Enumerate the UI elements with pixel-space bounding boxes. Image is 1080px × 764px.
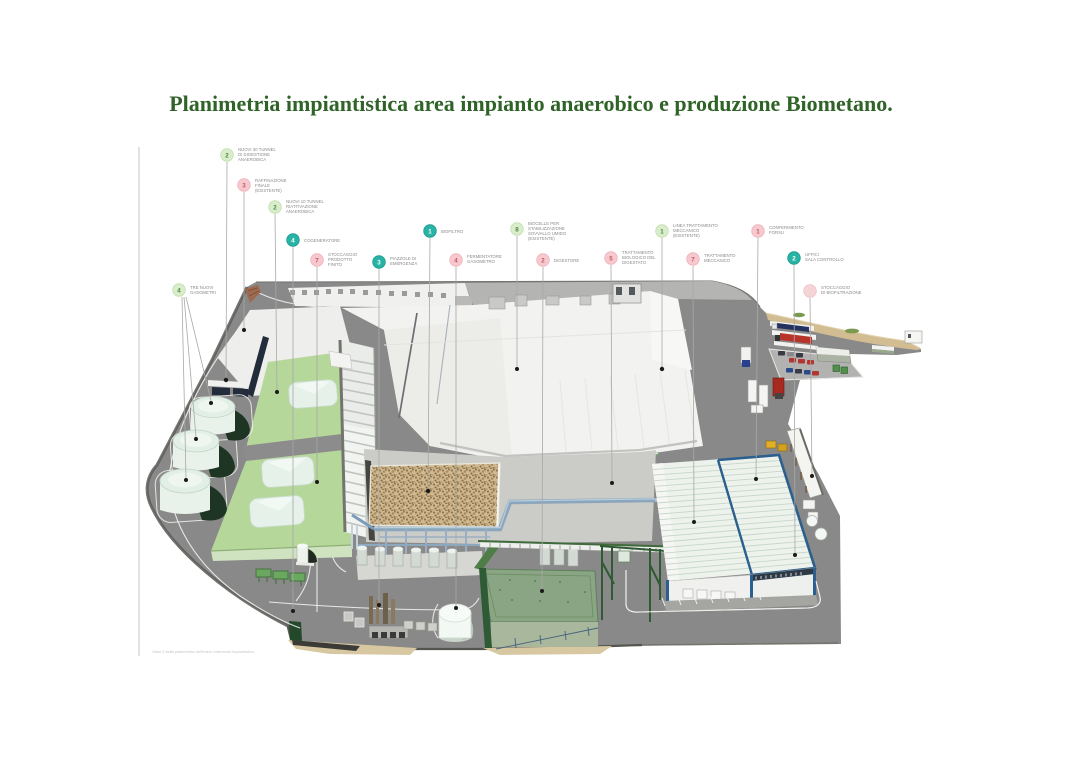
svg-text:8: 8: [515, 227, 519, 234]
svg-text:EMERGENZA: EMERGENZA: [390, 261, 417, 266]
svg-text:3: 3: [377, 260, 381, 267]
svg-text:(ESISTENTE): (ESISTENTE): [673, 233, 700, 238]
svg-text:GASOMETRI: GASOMETRI: [190, 290, 216, 295]
svg-text:7: 7: [691, 257, 695, 264]
svg-text:ANAEROBICA: ANAEROBICA: [286, 209, 314, 214]
svg-text:1: 1: [660, 229, 664, 236]
svg-text:FINITO: FINITO: [328, 262, 343, 267]
svg-text:1: 1: [428, 229, 432, 236]
svg-text:4: 4: [177, 288, 181, 295]
svg-text:2: 2: [225, 153, 229, 160]
svg-text:2: 2: [541, 258, 545, 265]
svg-text:BIOFILTRO: BIOFILTRO: [441, 229, 464, 234]
svg-text:DIGESTATO: DIGESTATO: [622, 260, 647, 265]
svg-text:4: 4: [291, 238, 295, 245]
svg-text:MECCANICO: MECCANICO: [704, 258, 731, 263]
svg-text:4: 4: [454, 258, 458, 265]
svg-text:1: 1: [756, 229, 760, 236]
svg-text:(ESISTENTE): (ESISTENTE): [255, 188, 282, 193]
svg-text:GASOMETRO: GASOMETRO: [467, 259, 496, 264]
svg-text:3: 3: [242, 183, 246, 190]
svg-text:7: 7: [315, 258, 319, 265]
svg-text:COGENERATORE: COGENERATORE: [304, 238, 340, 243]
svg-text:2: 2: [792, 256, 796, 263]
svg-text:DI BIOFILTRAZIONE: DI BIOFILTRAZIONE: [821, 290, 862, 295]
svg-text:5: 5: [609, 256, 613, 263]
svg-text:2: 2: [273, 205, 277, 212]
svg-text:ANAEROBICA: ANAEROBICA: [238, 157, 266, 162]
svg-text:DIGESTORE: DIGESTORE: [554, 258, 579, 263]
svg-text:(ESISTENTE): (ESISTENTE): [528, 236, 555, 241]
svg-text:SALA CONTROLLO: SALA CONTROLLO: [805, 257, 844, 262]
svg-text:Vista 3 della planimetria dell: Vista 3 della planimetria dell'intero in…: [152, 649, 255, 654]
svg-text:Planimetria impiantistica area: Planimetria impiantistica area impianto …: [169, 91, 893, 116]
svg-text:FORSU: FORSU: [769, 230, 784, 235]
